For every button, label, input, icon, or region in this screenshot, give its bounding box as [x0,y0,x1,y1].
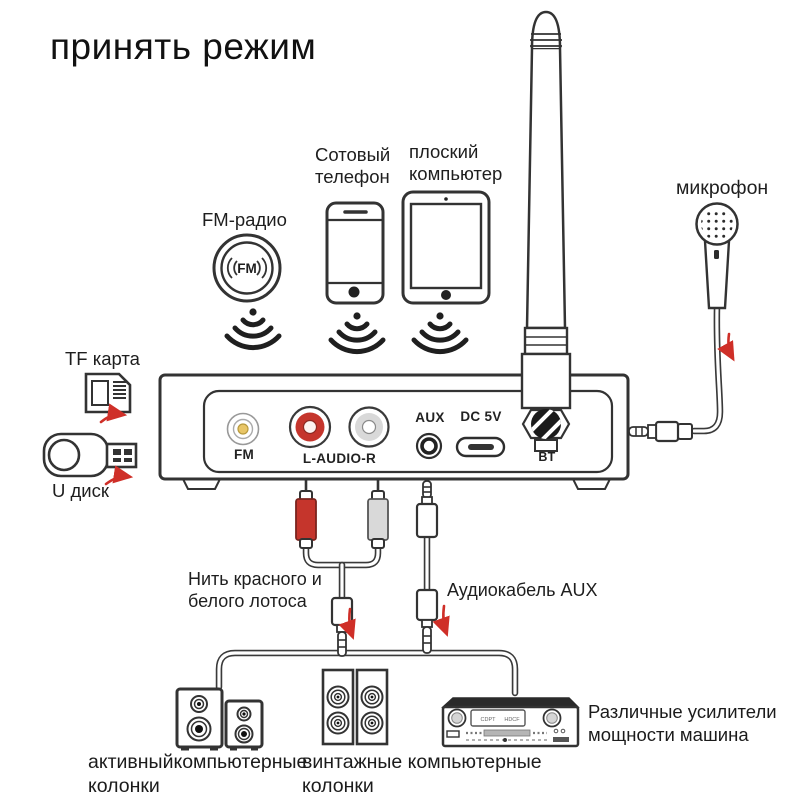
mic-cable-arrow [728,334,732,357]
usb-c-port [457,438,504,456]
rca-jack-right-white [350,408,389,447]
tablet-label: плоский компьютер [409,141,502,184]
wireless-waves-icon-phone [331,312,383,351]
amp-display-left-text: CDPT [481,717,497,723]
fm-radio-icon: FM [214,235,280,301]
page-title: принять режим [50,26,316,68]
tf-card-icon [86,374,130,412]
bluetooth-antenna-icon [522,12,570,451]
tf-card-label: TF карта [65,348,140,370]
fm-badge-text: FM [237,261,257,276]
tablet-icon [403,192,489,303]
dc5v-port-label: DC 5V [456,409,506,424]
phone-label: Сотовый телефон [315,144,390,187]
rca-jack-left-red [290,407,330,447]
bookshelf-speakers-icon [177,689,262,751]
product-diagram: FM [0,0,800,800]
aux-plug-arrow [443,606,446,632]
wireless-waves-icon-tablet [414,312,466,351]
wireless-waves-icon-fm [227,308,279,347]
diagram-artwork: FM [0,0,800,800]
microphone-icon [629,204,738,442]
phone-icon [327,203,383,303]
microphone-label: микрофон [676,178,768,200]
aux-jack [417,434,441,458]
vintage-speakers-label: винтажные компьютерные колонки [302,751,542,798]
rca-cable-label: Нить красного и белого лотоса [188,569,322,612]
u-disk-label: U диск [52,480,109,502]
aux-cable-icon [417,481,437,653]
amplifier-label: Различные усилители мощности машина [588,701,777,746]
active-speakers-label: активныйкомпьютерные колонки [88,751,307,798]
rca-port-label: L-AUDIO-R [297,451,382,466]
fm-radio-label: FM-радио [202,209,287,231]
mic-plug [629,422,692,441]
fm-antenna-jack [228,414,259,445]
u-disk-arrow [106,476,128,484]
bt-port-label: BT [532,450,562,464]
tower-speakers-icon [323,670,387,744]
amplifier-icon: CDPT HDCF [443,698,578,746]
aux-cable-label: Аудиокабель AUX [447,580,597,602]
usb-drive-icon [44,434,136,476]
fm-port-label: FM [228,447,260,462]
amp-display-right-text: HDCF [504,717,520,723]
rca-cable-icon [296,480,388,656]
aux-port-label: AUX [410,410,450,425]
tf-card-arrow [101,414,122,422]
